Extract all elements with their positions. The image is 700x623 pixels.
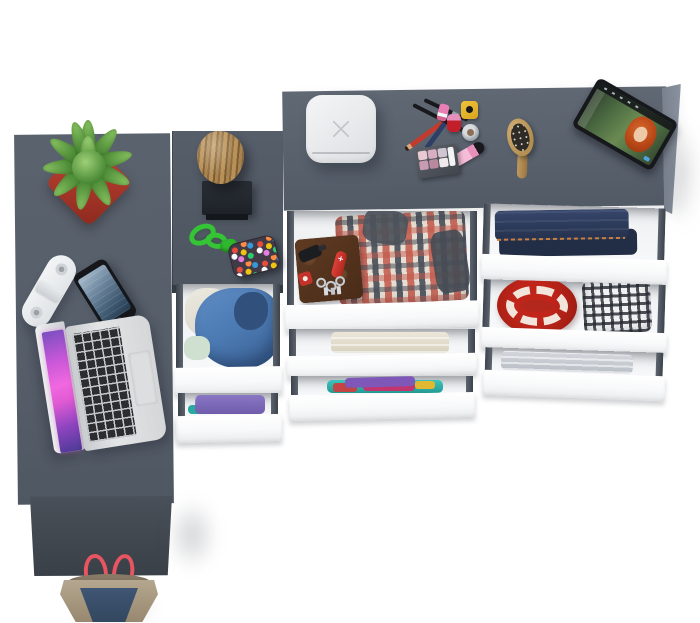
plant-leaves bbox=[36, 116, 140, 220]
drawer-front bbox=[289, 392, 476, 421]
palette-pan bbox=[447, 147, 456, 167]
purple-clothes bbox=[195, 395, 265, 414]
cosmetic-jar bbox=[462, 124, 479, 141]
palette-pan bbox=[439, 157, 449, 167]
drawer-front bbox=[483, 370, 666, 402]
drawer-front bbox=[287, 353, 477, 379]
storage-box bbox=[306, 95, 376, 163]
nail-polish-red bbox=[447, 114, 461, 132]
keychain-badge bbox=[297, 270, 313, 286]
red-plate bbox=[496, 279, 578, 335]
drawer-front bbox=[176, 414, 283, 443]
nail-polish-yellow bbox=[461, 101, 478, 119]
laptop-trackpad bbox=[128, 350, 158, 407]
brush-handle bbox=[517, 152, 528, 178]
drawer-front bbox=[285, 300, 480, 331]
drawer-front bbox=[174, 366, 282, 395]
drawer-interior-left-1 bbox=[176, 284, 280, 368]
speaker-grille bbox=[28, 304, 44, 320]
palette-pan bbox=[418, 150, 428, 160]
cream-towel bbox=[331, 332, 449, 353]
speaker-grille bbox=[53, 261, 69, 277]
folded-jeans bbox=[495, 209, 638, 259]
leather-wallet bbox=[294, 234, 363, 303]
drawer-interior-right-1 bbox=[482, 203, 665, 260]
speaker-band bbox=[35, 279, 64, 302]
drawer-interior-middle-2 bbox=[289, 329, 475, 356]
jeans-layer bbox=[495, 209, 629, 241]
car-key bbox=[297, 244, 323, 264]
plant-core bbox=[72, 150, 106, 184]
checked-shirt bbox=[582, 279, 653, 335]
palette-pan bbox=[437, 148, 447, 158]
hoodie-hood bbox=[234, 292, 268, 330]
folded-cloth bbox=[184, 336, 210, 360]
keyring bbox=[316, 274, 348, 299]
laptop-keyboard bbox=[72, 326, 137, 442]
scene bbox=[0, 0, 700, 623]
tablet-screen bbox=[577, 82, 674, 166]
shadow bbox=[166, 498, 218, 572]
tote-bag bbox=[60, 554, 158, 622]
shirt-sleeve bbox=[361, 211, 410, 247]
box-cross-mark bbox=[333, 121, 349, 137]
palette-pan bbox=[429, 159, 439, 169]
palette-pan bbox=[419, 160, 429, 170]
drawer-interior-middle-1 bbox=[287, 211, 477, 305]
stump-bracket bbox=[202, 181, 252, 215]
succulent-plant bbox=[32, 118, 144, 230]
box-lid-seam bbox=[312, 152, 370, 154]
colorful-clothes-stack bbox=[327, 377, 445, 394]
purple-clothes bbox=[345, 376, 415, 388]
shirt-sleeve bbox=[429, 228, 472, 295]
drawer-interior-right-2 bbox=[482, 279, 665, 335]
screen-icon bbox=[643, 155, 650, 161]
laptop bbox=[32, 304, 170, 461]
eyeshadow-palette bbox=[414, 143, 460, 179]
yellow-clothes bbox=[415, 381, 435, 389]
palette-pan bbox=[427, 149, 437, 159]
